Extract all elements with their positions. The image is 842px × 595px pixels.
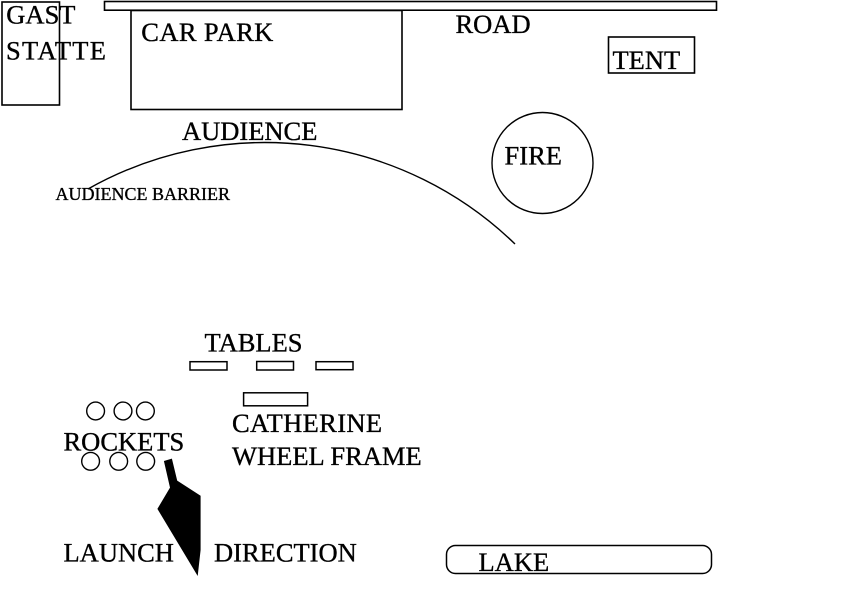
svg-text:ROAD: ROAD [456, 9, 531, 39]
svg-text:TABLES: TABLES [205, 328, 303, 358]
svg-text:GAST: GAST [6, 0, 75, 30]
svg-text:AUDIENCE: AUDIENCE [182, 116, 317, 146]
svg-text:CAR PARK: CAR PARK [141, 17, 273, 47]
svg-text:ROCKETS: ROCKETS [64, 427, 185, 457]
svg-text:DIRECTION: DIRECTION [214, 537, 357, 567]
svg-text:AUDIENCE BARRIER: AUDIENCE BARRIER [56, 184, 231, 204]
svg-text:WHEEL FRAME: WHEEL FRAME [232, 441, 422, 471]
svg-text:CATHERINE: CATHERINE [232, 408, 382, 438]
svg-text:STATTE: STATTE [6, 36, 107, 66]
svg-text:TENT: TENT [613, 45, 681, 75]
svg-text:FIRE: FIRE [505, 140, 562, 170]
svg-text:LAUNCH: LAUNCH [64, 537, 174, 567]
svg-text:LAKE: LAKE [479, 547, 550, 577]
